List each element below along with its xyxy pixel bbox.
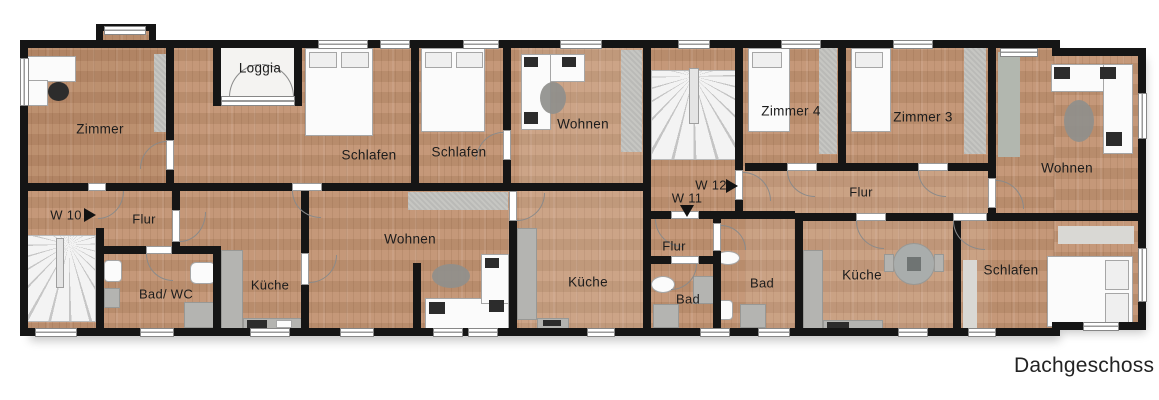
- window: [678, 40, 710, 49]
- wall: [988, 48, 996, 178]
- window: [468, 328, 498, 337]
- unit-w10-arrow-icon: [84, 208, 96, 222]
- window: [898, 328, 928, 337]
- wall: [651, 211, 671, 219]
- desk-return: [26, 80, 48, 106]
- rug-wohnen-right: [1064, 100, 1094, 142]
- kitchen2-sink: [543, 320, 561, 326]
- wardrobe-schlafen3-left: [963, 260, 977, 328]
- wall: [713, 211, 721, 223]
- wall: [838, 48, 846, 163]
- window: [35, 328, 77, 337]
- door: [88, 183, 106, 191]
- shower-bad2: [740, 304, 766, 328]
- wall: [795, 219, 803, 336]
- wall: [643, 48, 651, 336]
- door: [918, 163, 948, 171]
- dining-table-center: [907, 257, 921, 271]
- washer-bad1: [653, 304, 679, 328]
- window: [1138, 93, 1147, 139]
- window: [104, 26, 146, 35]
- room-label-zimmer3: Zimmer 3: [893, 110, 952, 124]
- kitchen2-counter: [517, 228, 537, 320]
- wall: [106, 183, 292, 191]
- window: [1138, 248, 1147, 302]
- pillow: [855, 52, 883, 68]
- unit-label-w11: W 11: [672, 192, 703, 205]
- wall: [213, 40, 221, 106]
- window: [318, 40, 368, 49]
- window: [20, 58, 29, 106]
- wall: [419, 183, 503, 191]
- door: [166, 140, 174, 170]
- wardrobe-zimmer3: [964, 48, 986, 154]
- pillow: [341, 52, 369, 68]
- door: [713, 223, 721, 251]
- wall: [987, 213, 1138, 221]
- room-label-flur-2: Flur: [662, 240, 686, 253]
- window: [781, 40, 821, 49]
- room-label-loggia: Loggia: [239, 61, 281, 75]
- plan-title: Dachgeschoss: [1014, 354, 1148, 378]
- window: [1000, 48, 1038, 57]
- window: [463, 40, 499, 49]
- pillow: [309, 52, 337, 68]
- door: [146, 246, 172, 254]
- door: [988, 178, 996, 208]
- room-label-bad-2: Bad: [750, 277, 774, 290]
- sofa-cushion: [485, 258, 499, 268]
- window: [560, 40, 602, 49]
- room-label-zimmer: Zimmer: [76, 122, 124, 136]
- wall: [149, 24, 156, 46]
- kitchen3-counter: [803, 250, 823, 336]
- unit-label-w12: W 12: [695, 179, 727, 192]
- wall: [886, 213, 953, 221]
- wall: [28, 183, 88, 191]
- wall: [651, 256, 671, 264]
- sofa-cushion: [1054, 67, 1070, 79]
- door: [856, 213, 886, 221]
- window: [700, 328, 730, 337]
- wall: [795, 213, 856, 221]
- sofa-cushion: [429, 302, 445, 314]
- wall: [948, 163, 992, 171]
- window: [340, 328, 374, 337]
- chair: [884, 254, 894, 272]
- wardrobe-wohnen-right: [998, 52, 1020, 157]
- room-label-bad-wc: Bad/ WC: [139, 288, 193, 301]
- room-label-kueche-3: Küche: [842, 268, 882, 282]
- wall: [172, 242, 180, 254]
- door: [172, 210, 180, 242]
- basin-badwc: [104, 288, 120, 308]
- office-chair: [48, 82, 69, 101]
- door: [953, 213, 987, 221]
- window: [968, 328, 996, 337]
- wall: [96, 228, 104, 336]
- unit-label-w10: W 10: [50, 209, 82, 222]
- wall: [743, 211, 795, 219]
- wardrobe-wohnen-mid: [408, 192, 508, 210]
- sofa-cushion: [1100, 67, 1116, 79]
- wardrobe-wohnen-top: [621, 50, 642, 152]
- kitchen1-counter: [221, 250, 243, 330]
- window: [758, 328, 790, 337]
- window: [587, 328, 615, 337]
- wall: [301, 285, 309, 336]
- room-label-zimmer4: Zimmer 4: [761, 104, 820, 118]
- room-label-schlafen-2: Schlafen: [432, 145, 487, 159]
- window: [433, 328, 463, 337]
- wall: [503, 160, 511, 191]
- wall: [713, 251, 721, 336]
- wall: [172, 191, 180, 210]
- window: [1083, 322, 1119, 331]
- room-label-flur-1: Flur: [132, 213, 156, 226]
- kitchen1-sink: [276, 320, 292, 328]
- sofa-cushion: [524, 57, 538, 67]
- chair: [934, 254, 944, 272]
- room-label-schlafen-1: Schlafen: [342, 148, 397, 162]
- unit-w11-arrow-icon: [680, 205, 694, 217]
- wall: [745, 163, 787, 171]
- rug-wohnen-mid: [432, 264, 470, 288]
- window: [140, 328, 174, 337]
- room-label-schlafen-3: Schlafen: [984, 263, 1039, 277]
- wardrobe-zimmer4: [819, 48, 837, 154]
- sofa-cushion: [562, 57, 576, 67]
- pillow: [1105, 260, 1129, 290]
- window: [380, 40, 410, 49]
- wall: [817, 163, 918, 171]
- room-label-flur-3: Flur: [849, 186, 873, 199]
- kitchen1-stove: [247, 320, 267, 328]
- room-label-kueche-2: Küche: [568, 275, 608, 289]
- window: [250, 328, 290, 337]
- wall: [511, 183, 643, 191]
- door: [671, 256, 699, 264]
- door: [292, 183, 322, 191]
- room-label-wohnen-mid: Wohnen: [384, 232, 436, 246]
- toilet-badwc: [104, 260, 122, 282]
- room-label-bad-1: Bad: [676, 293, 700, 306]
- door: [509, 191, 517, 221]
- wardrobe-schlafen3-top: [1058, 226, 1134, 244]
- pillow: [456, 52, 483, 68]
- door: [787, 163, 817, 171]
- wall: [735, 48, 743, 170]
- wall: [213, 246, 221, 336]
- door: [503, 130, 511, 160]
- rug-wohnen-top: [540, 82, 566, 114]
- wall: [413, 263, 421, 336]
- wall: [96, 24, 103, 46]
- sofa-cushion: [1106, 132, 1122, 146]
- stairs-left-newel: [56, 238, 64, 288]
- wall: [503, 48, 511, 130]
- wall: [166, 48, 174, 140]
- stairs-middle-newel: [689, 68, 699, 124]
- pillow: [425, 52, 452, 68]
- wall: [411, 48, 419, 191]
- wall: [322, 183, 411, 191]
- sofa-cushion: [524, 112, 538, 124]
- room-label-kueche-1: Küche: [251, 279, 289, 292]
- loggia-railing: [221, 96, 295, 106]
- wall: [699, 211, 743, 219]
- wall: [1052, 48, 1146, 56]
- room-label-wohnen-top: Wohnen: [557, 117, 609, 131]
- window: [893, 40, 933, 49]
- floor-plan: Zimmer Loggia Schlafen Schlafen Wohnen Z…: [0, 0, 1159, 400]
- desk: [26, 56, 76, 82]
- pillow: [1105, 293, 1129, 323]
- wall: [294, 40, 302, 106]
- wall: [509, 221, 517, 336]
- pillow: [752, 52, 782, 68]
- unit-w12-arrow-icon: [726, 179, 738, 193]
- door: [301, 253, 309, 285]
- room-label-wohnen-right: Wohnen: [1041, 161, 1093, 175]
- wall: [699, 256, 713, 264]
- shower-badwc: [184, 302, 216, 328]
- sofa-cushion: [489, 300, 504, 312]
